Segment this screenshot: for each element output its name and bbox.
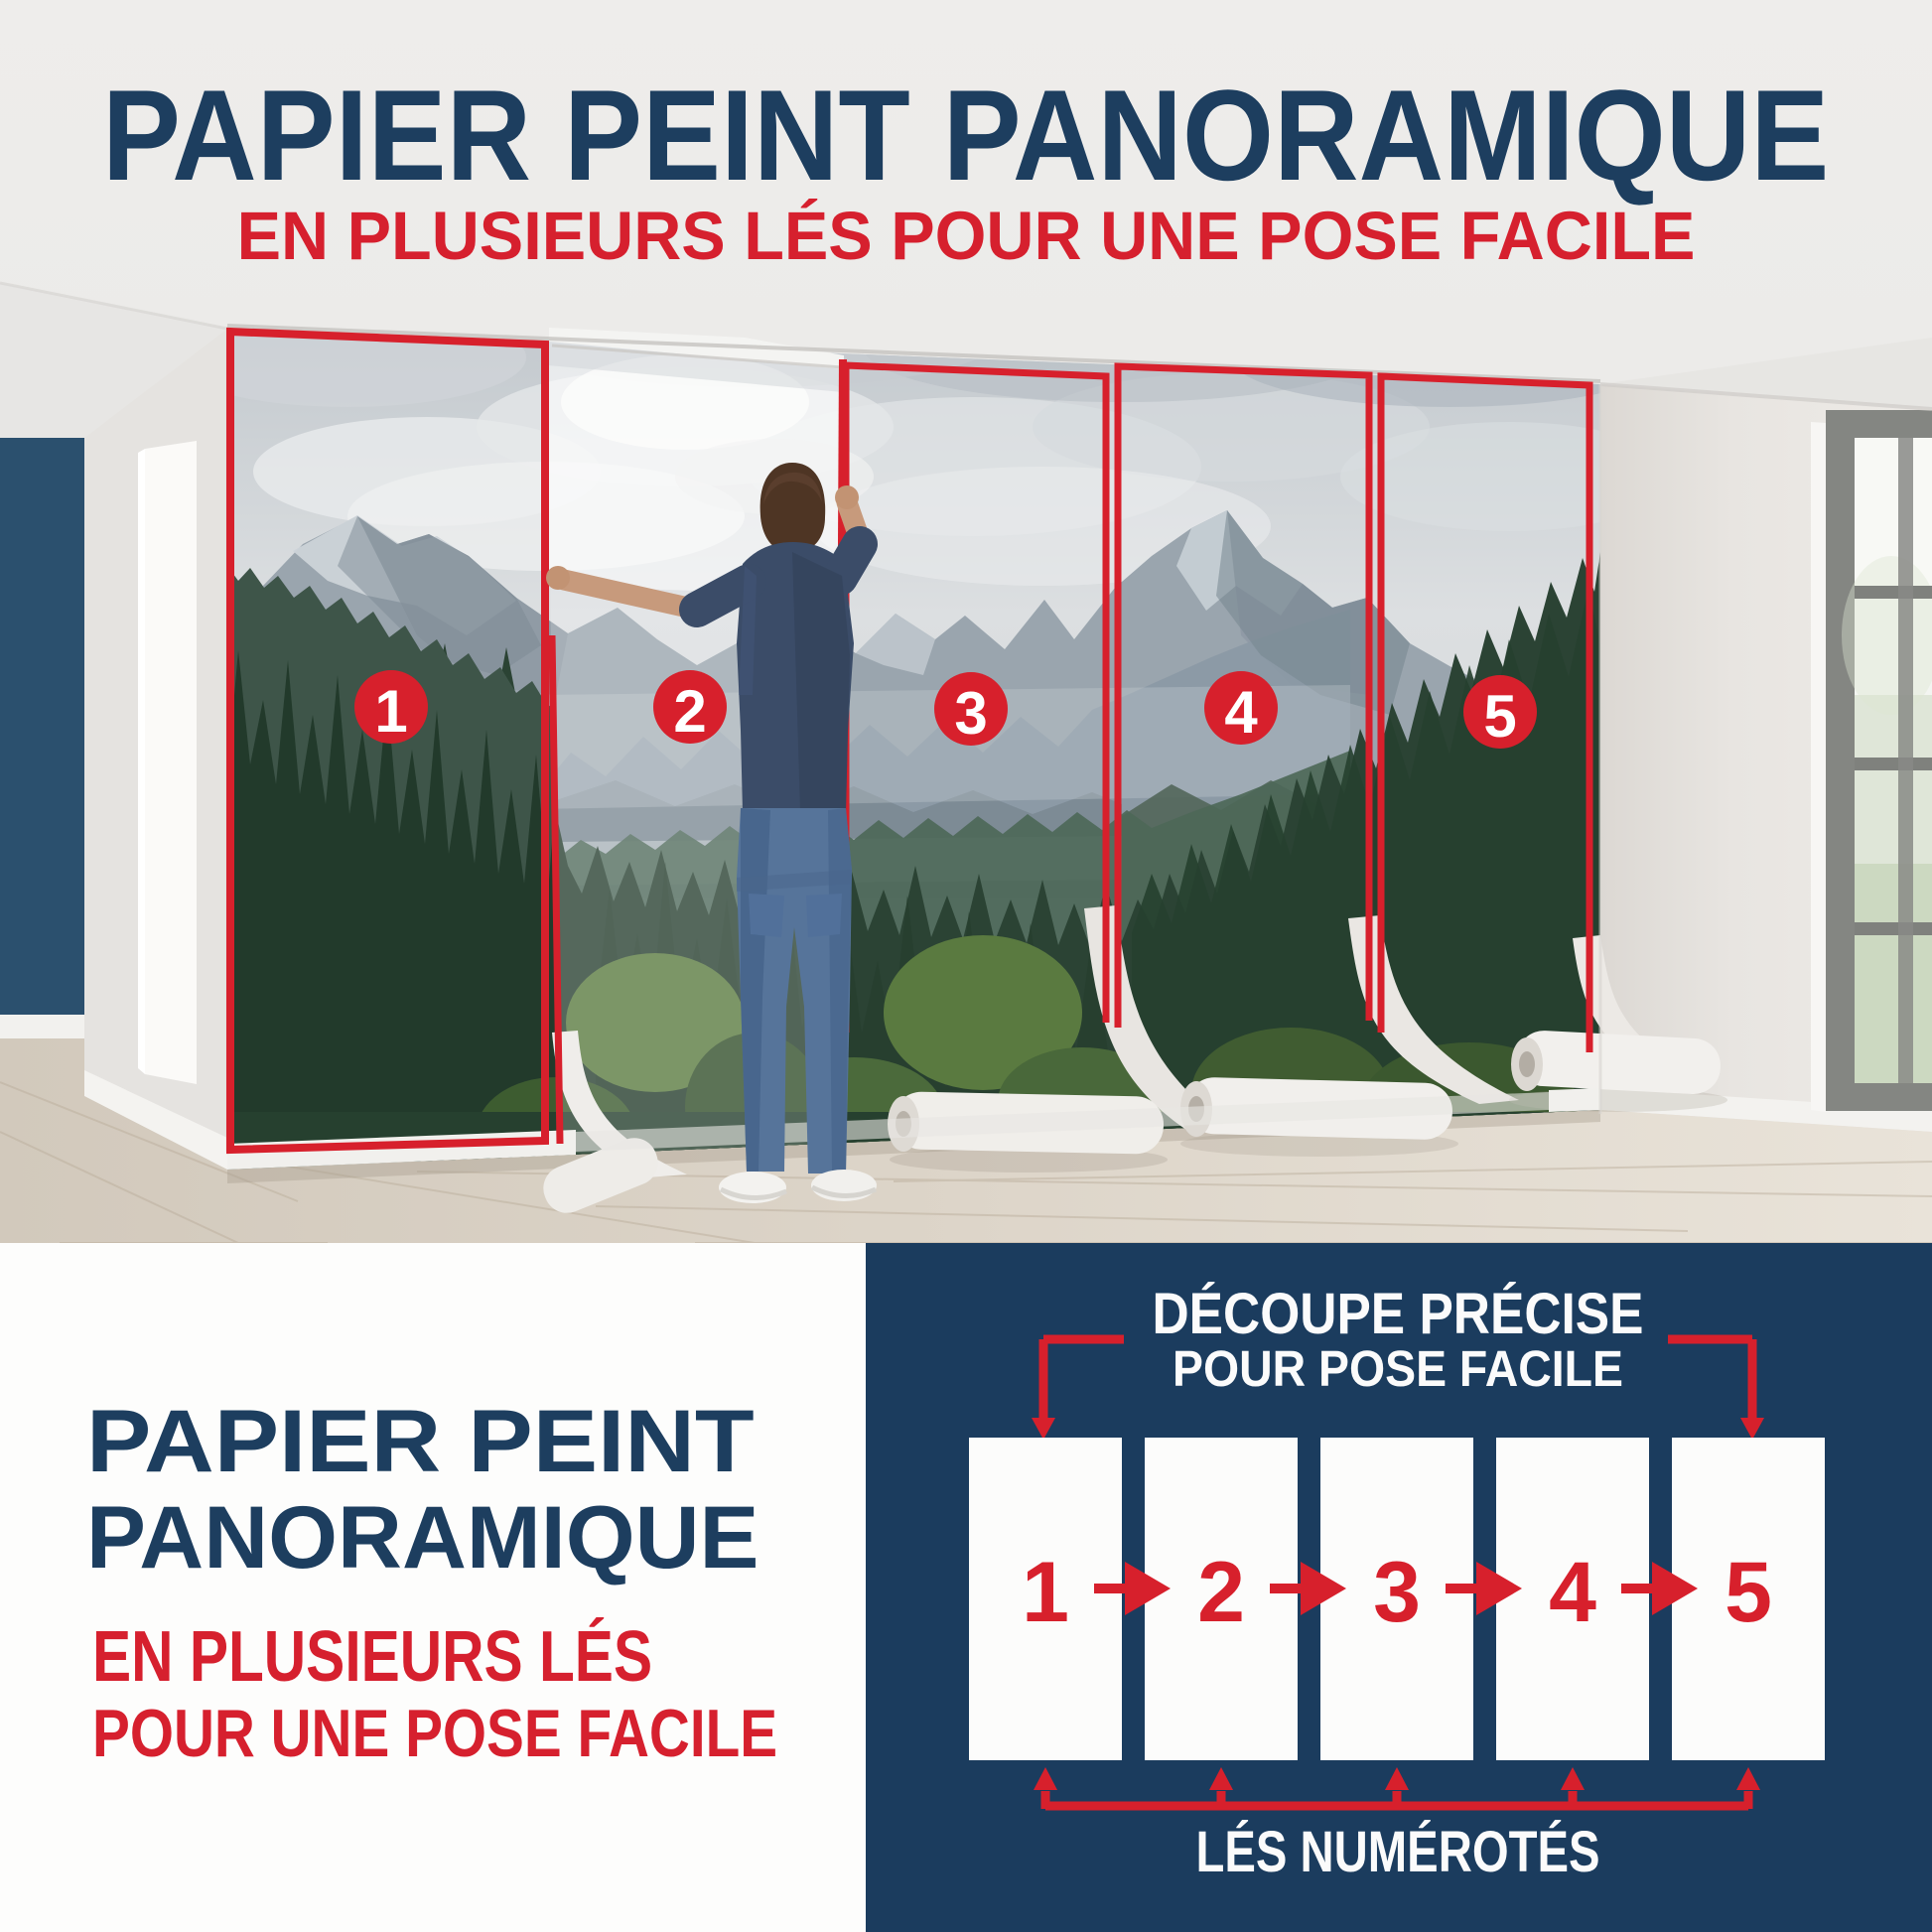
svg-text:5: 5 [1725,1545,1772,1640]
svg-text:POUR POSE FACILE: POUR POSE FACILE [1173,1340,1623,1397]
svg-text:1: 1 [374,678,407,745]
svg-text:2: 2 [1197,1545,1245,1640]
svg-text:5: 5 [1483,683,1516,750]
svg-text:3: 3 [1373,1545,1421,1640]
svg-text:4: 4 [1549,1545,1596,1640]
svg-text:3: 3 [954,680,987,747]
svg-text:1: 1 [1022,1545,1069,1640]
svg-text:2: 2 [673,678,706,745]
svg-text:DÉCOUPE PRÉCISE: DÉCOUPE PRÉCISE [1153,1282,1644,1346]
svg-text:4: 4 [1224,679,1258,746]
svg-text:LÉS NUMÉROTÉS: LÉS NUMÉROTÉS [1196,1820,1600,1884]
